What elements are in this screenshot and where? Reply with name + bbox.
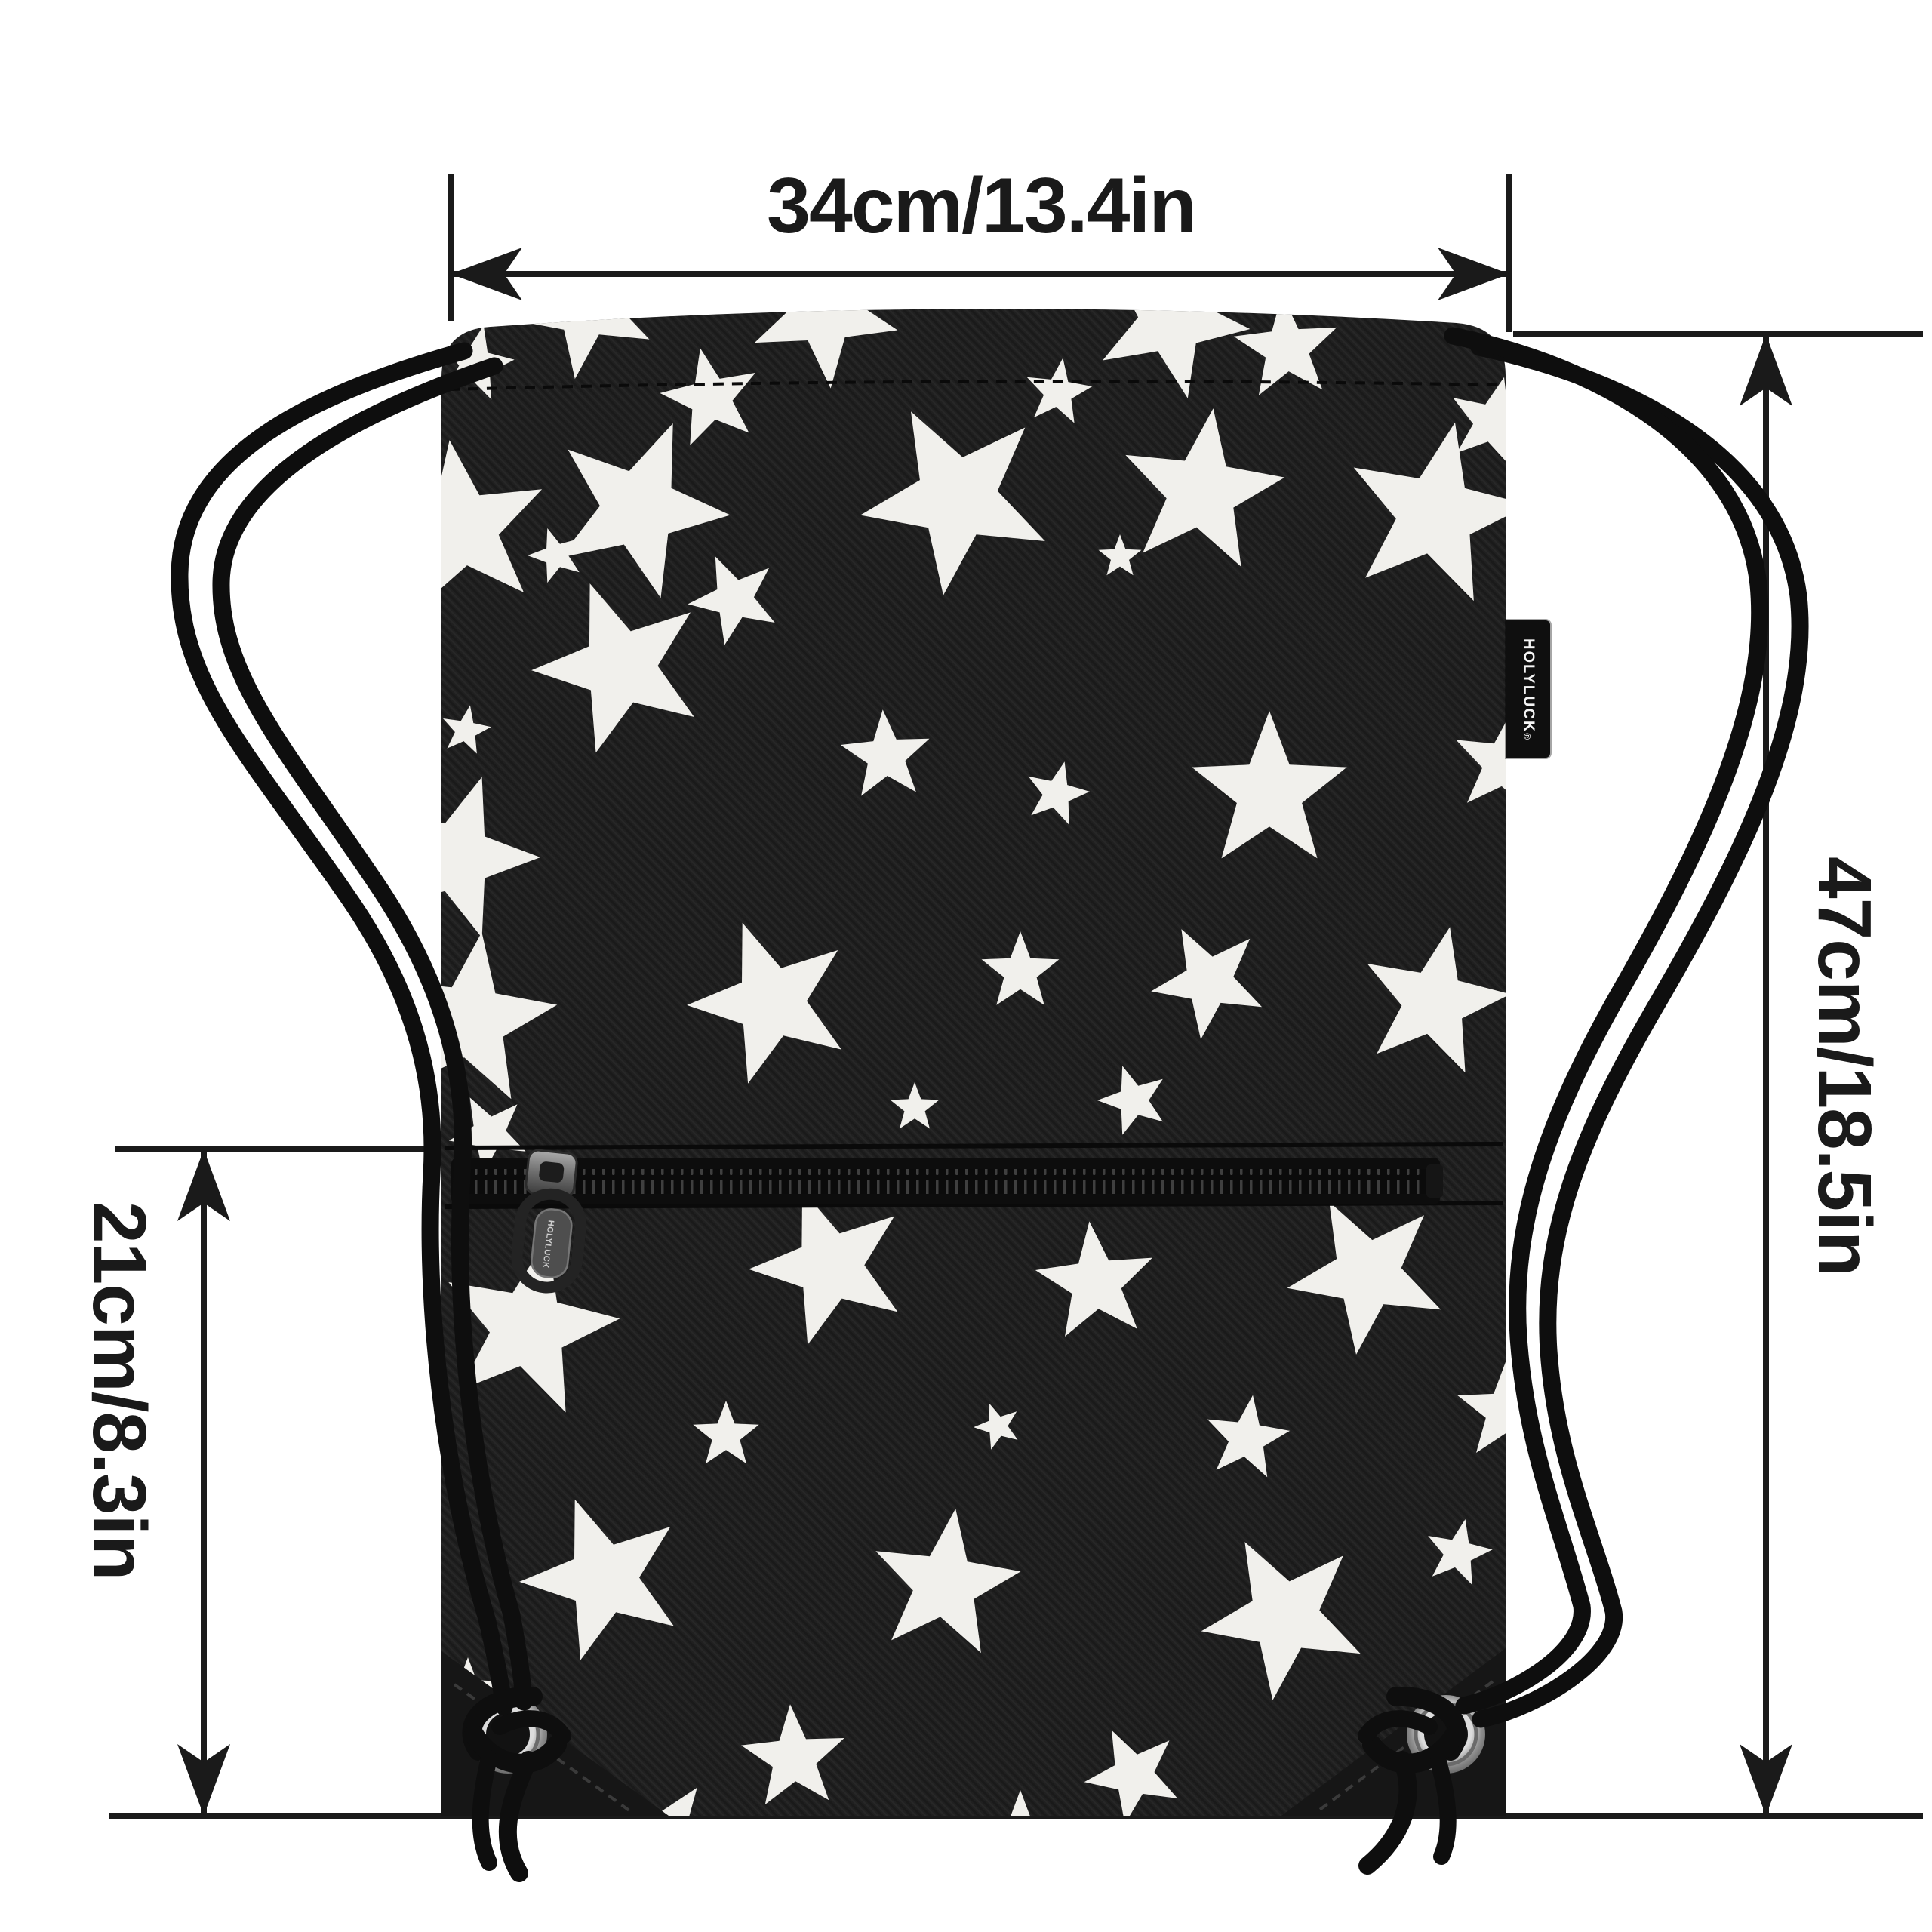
scene-graphic (0, 0, 1932, 1932)
product-dimension-diagram: 34cm/13.4in 47cm/18.5in 21cm/8.3in HOLYL… (0, 0, 1932, 1932)
zipper-teeth (460, 1169, 1429, 1194)
height-dimension-label: 47cm/18.5in (1802, 857, 1887, 1276)
brand-label-text: HOLYLUCK® (1520, 638, 1537, 740)
registered-trademark-icon: ® (1522, 733, 1533, 740)
pocket-height-dimension-label: 21cm/8.3in (77, 1201, 162, 1580)
zipper-stop (1426, 1164, 1443, 1198)
drawstring-bag (374, 245, 1558, 1908)
brand-label-tag: HOLYLUCK® (1506, 620, 1550, 758)
pocket-height-dimension (115, 1149, 445, 1816)
width-dimension-label: 34cm/13.4in (641, 162, 1321, 251)
